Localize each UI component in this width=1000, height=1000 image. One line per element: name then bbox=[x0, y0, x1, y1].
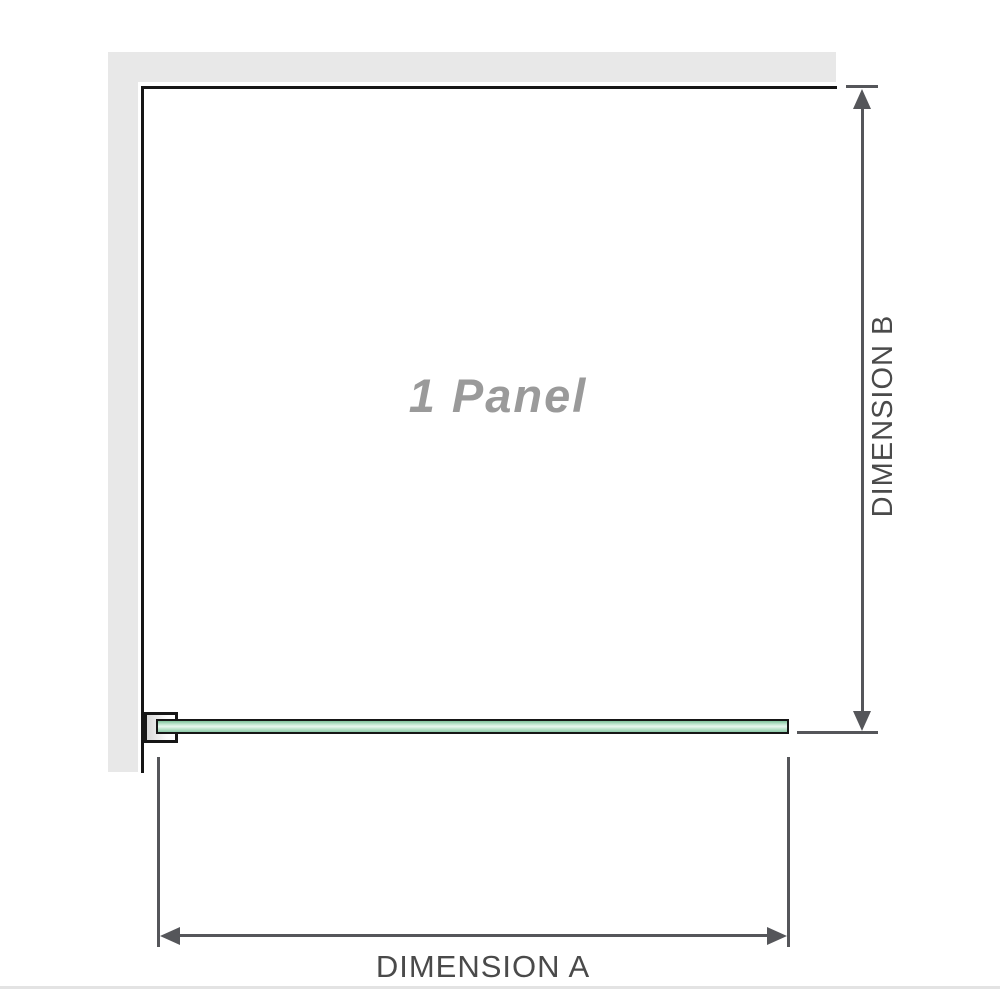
dimension-b-arrowhead-down-icon bbox=[853, 711, 871, 731]
wall-left bbox=[108, 52, 138, 772]
dimension-a-arrowhead-left-icon bbox=[160, 927, 180, 945]
glass-panel bbox=[156, 719, 789, 734]
dimension-b-line bbox=[861, 100, 864, 718]
panel-count-label: 1 Panel bbox=[348, 368, 648, 424]
dimension-a-arrowhead-right-icon bbox=[767, 927, 787, 945]
wall-top bbox=[108, 52, 836, 82]
dimension-a-extension-right bbox=[787, 757, 790, 947]
shower-screen-diagram: 1 Panel DIMENSION B DIMENSION A bbox=[0, 0, 1000, 1000]
dimension-b-arrowhead-up-icon bbox=[853, 89, 871, 109]
dimension-b-label: DIMENSION B bbox=[865, 266, 901, 566]
wall-inner-edge-left bbox=[141, 86, 144, 773]
dimension-a-extension-left bbox=[157, 757, 160, 947]
dimension-b-tick-bottom bbox=[797, 731, 878, 734]
image-bottom-divider bbox=[0, 986, 1000, 989]
dimension-a-line bbox=[175, 934, 771, 937]
wall-inner-edge-top bbox=[141, 86, 837, 89]
dimension-a-label: DIMENSION A bbox=[333, 948, 633, 986]
dimension-b-tick-top bbox=[846, 85, 878, 88]
